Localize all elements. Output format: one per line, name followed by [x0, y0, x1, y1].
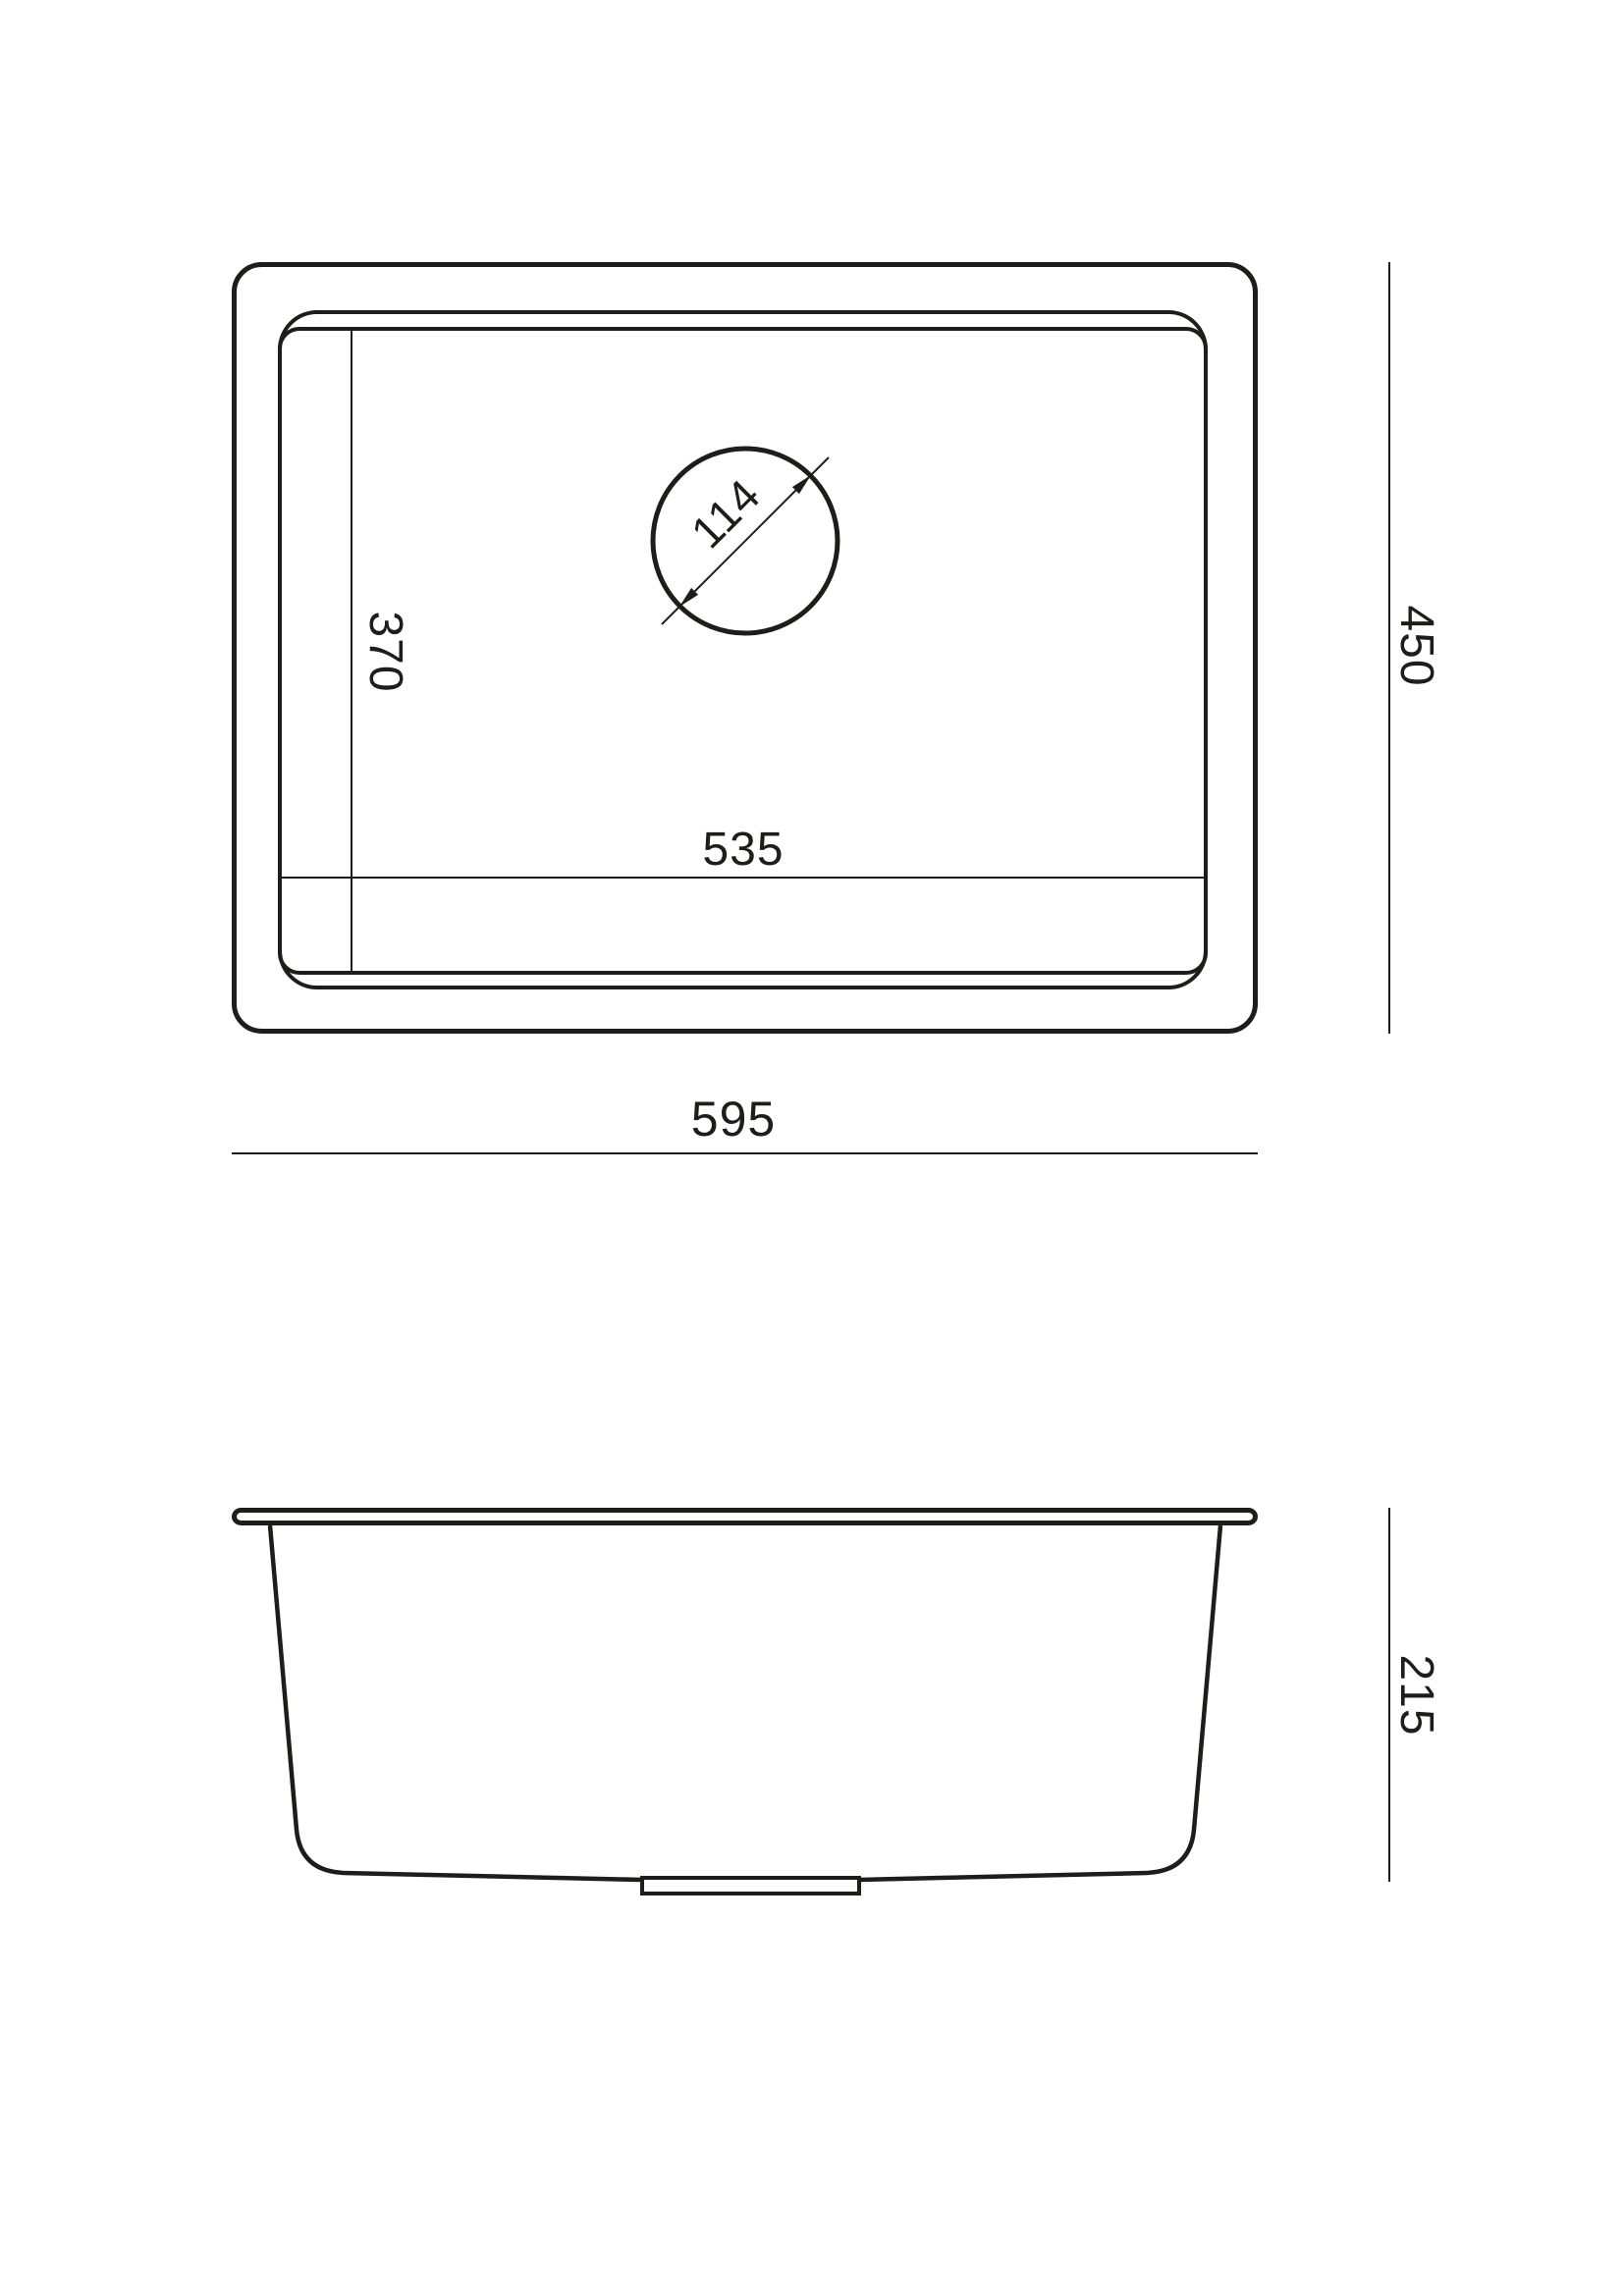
- dim-label-inner-depth: 370: [361, 611, 408, 692]
- side-view-drain-boss: [642, 1878, 859, 1894]
- side-view-left-wall: [270, 1525, 642, 1880]
- side-view-flange: [235, 1511, 1256, 1523]
- side-view-right-wall: [859, 1525, 1220, 1880]
- top-view-bowl-rim-inner: [280, 329, 1206, 973]
- dim-label-inner-length: 535: [702, 827, 784, 874]
- sink-line-drawing: [0, 0, 1624, 2296]
- dim-label-overall-height: 215: [1392, 1654, 1439, 1735]
- dim-label-overall-length: 595: [691, 1095, 776, 1144]
- technical-drawing-page: 535 370 114 595 450 215: [0, 0, 1624, 2296]
- top-view-bowl-rim-outer: [280, 312, 1206, 988]
- dim-label-overall-depth: 450: [1392, 605, 1439, 686]
